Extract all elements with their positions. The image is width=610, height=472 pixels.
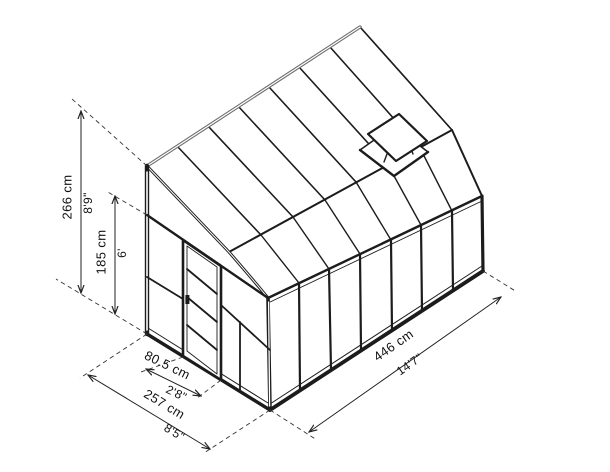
greenhouse-diagram: 266 cm 8'9" 185 cm 6' 80.5 cm 2'8" 257 c… <box>0 0 610 472</box>
diagram-canvas: 266 cm 8'9" 185 cm 6' 80.5 cm 2'8" 257 c… <box>0 0 610 472</box>
mullion <box>299 283 300 390</box>
ext-peak <box>72 99 147 166</box>
label-side-length-imperial: 14'7" <box>394 350 425 378</box>
mullion <box>452 211 453 291</box>
mullion <box>421 225 422 311</box>
ext-446-right <box>483 271 517 292</box>
label-wall-height-metric: 185 cm <box>93 229 108 274</box>
mullion <box>360 254 361 350</box>
back-corner-post <box>482 196 483 271</box>
ext-ground-left <box>56 279 147 334</box>
label-total-height-metric: 266 cm <box>59 174 74 219</box>
ext-257-left <box>80 334 147 378</box>
entry-door <box>183 240 221 380</box>
ext-257-right <box>204 410 270 453</box>
label-wall-height-imperial: 6' <box>115 248 129 258</box>
label-front-width-imperial: 8'5" <box>162 421 188 444</box>
greenhouse-building <box>147 27 483 410</box>
ext-wall-top <box>106 191 147 215</box>
label-total-height-imperial: 8'9" <box>81 192 95 214</box>
door-handle <box>185 295 189 304</box>
mullion <box>391 240 392 331</box>
ext-door-right <box>196 380 221 399</box>
ext-446-left <box>270 410 317 440</box>
